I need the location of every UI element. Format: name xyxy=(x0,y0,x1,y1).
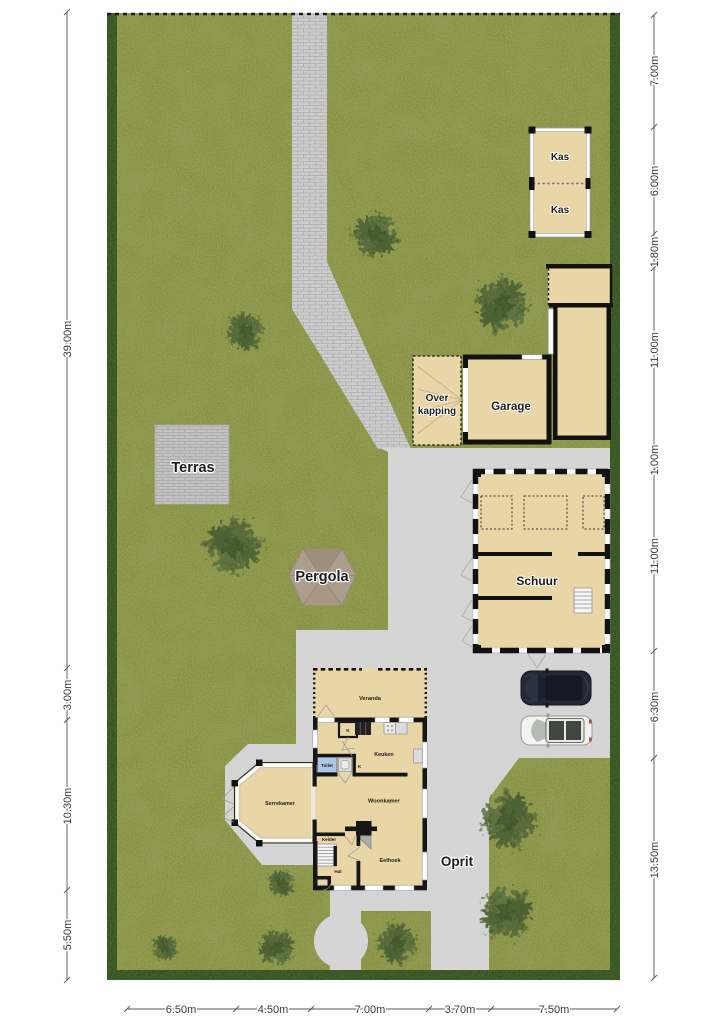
svg-text:7.50m: 7.50m xyxy=(539,1004,570,1016)
svg-text:11.00m: 11.00m xyxy=(649,332,661,368)
svg-text:7.00m: 7.00m xyxy=(649,56,661,87)
svg-text:3.70m: 3.70m xyxy=(445,1004,476,1016)
svg-text:Kelder: Kelder xyxy=(322,837,337,842)
svg-text:6.00m: 6.00m xyxy=(649,166,661,197)
svg-text:Serrekamer: Serrekamer xyxy=(265,801,296,807)
svg-text:3.00m: 3.00m xyxy=(62,680,74,711)
svg-text:1.00m: 1.00m xyxy=(649,445,661,476)
svg-text:Woonkamer: Woonkamer xyxy=(368,799,401,805)
svg-text:1.80m: 1.80m xyxy=(649,237,661,268)
svg-text:4.50m: 4.50m xyxy=(258,1004,289,1016)
svg-text:Kas: Kas xyxy=(551,205,570,216)
svg-text:Pergola: Pergola xyxy=(295,569,349,585)
svg-text:Veranda: Veranda xyxy=(359,696,382,702)
svg-text:Hal: Hal xyxy=(334,869,341,874)
svg-text:Terras: Terras xyxy=(171,460,214,476)
svg-text:7.00m: 7.00m xyxy=(355,1004,386,1016)
svg-text:39.00m: 39.00m xyxy=(62,321,74,358)
svg-text:kapping: kapping xyxy=(418,406,456,417)
svg-text:6.30m: 6.30m xyxy=(649,692,661,723)
svg-text:Garage: Garage xyxy=(491,401,531,413)
svg-text:Toilet: Toilet xyxy=(321,763,333,768)
svg-text:Schuur: Schuur xyxy=(516,574,558,588)
svg-text:Oprit: Oprit xyxy=(441,854,474,869)
svg-text:6.50m: 6.50m xyxy=(166,1004,197,1016)
svg-text:5.50m: 5.50m xyxy=(62,920,74,951)
svg-text:Eethoek: Eethoek xyxy=(380,858,401,864)
svg-text:K: K xyxy=(346,728,350,734)
svg-text:13.50m: 13.50m xyxy=(649,842,661,879)
svg-text:Keuken: Keuken xyxy=(374,752,393,758)
svg-text:11.00m: 11.00m xyxy=(649,538,661,574)
svg-text:Kas: Kas xyxy=(551,152,570,163)
svg-text:10.30m: 10.30m xyxy=(62,788,74,825)
svg-text:Over: Over xyxy=(426,393,449,404)
